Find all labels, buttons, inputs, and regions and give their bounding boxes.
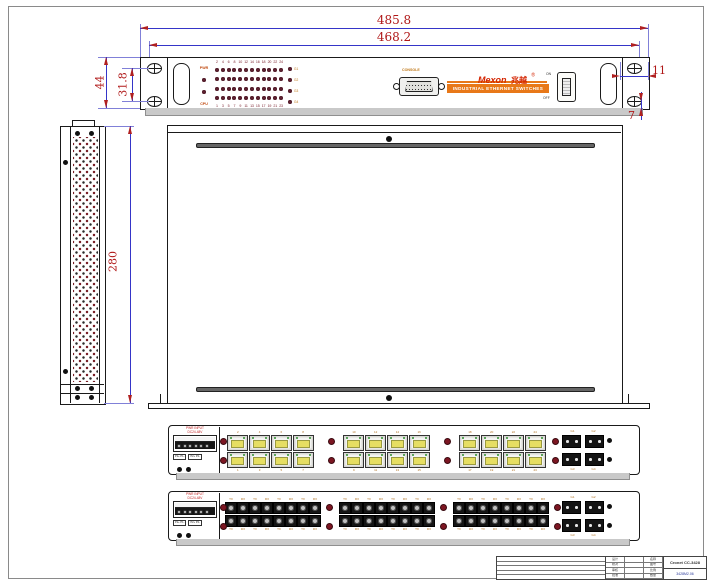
title-block-grid: 设计 名称 校对 图号 审核 比例 批准 数量 [606, 557, 664, 579]
terminal-screw [199, 444, 203, 448]
fiber-port [363, 502, 375, 514]
screw [75, 395, 80, 400]
chassis-screw [440, 523, 447, 530]
panel-screw [607, 523, 612, 528]
fiber-port [411, 515, 423, 527]
fiber-group: TXRXTXRXTXRXTXRXTXRXTXRXTXRXTXRX [339, 497, 435, 531]
fiber-group: TXRXTXRXTXRXTXRXTXRXTXRXTXRXTXRX [453, 497, 549, 531]
fiber-port [501, 502, 513, 514]
port-led [238, 68, 242, 72]
rj45-group: 24681357 [227, 430, 314, 472]
uplink-labels: G3G4 [562, 467, 604, 471]
chassis-screw [444, 438, 451, 445]
gig-label: G1 [570, 429, 574, 433]
alarm-led [202, 90, 206, 94]
uplink-labels: G1G2 [562, 495, 604, 499]
fiber-port [309, 502, 321, 514]
registered-mark: ® [531, 73, 535, 79]
fiber-label: RX [351, 527, 363, 531]
terminal-legend: P2+ P2- [188, 520, 201, 526]
screw [75, 131, 80, 136]
ground-screw [186, 533, 191, 538]
fiber-port [351, 502, 363, 514]
port-led [244, 96, 248, 100]
port-number: 22 [503, 430, 525, 434]
rj45-port [227, 452, 248, 468]
fiber-port [351, 515, 363, 527]
terminal-screw [205, 444, 209, 448]
power-rating: DC24-48V [173, 497, 217, 501]
gig-led [288, 67, 292, 71]
dim-overall-width: 485.8 [140, 13, 648, 27]
fiber-label: RX [309, 527, 321, 531]
rj45-port [481, 435, 502, 451]
dim-bracket-drop: 7 [628, 109, 635, 122]
panel-slot-left [173, 63, 190, 105]
port-number: 9 [343, 468, 365, 472]
switch-off-label: OFF [543, 96, 550, 100]
gig-label: G1 [294, 67, 298, 71]
fiber-label: TX [387, 497, 399, 501]
rj45-port [503, 435, 524, 451]
chassis-screw [220, 457, 227, 464]
terminal-screw [188, 444, 192, 448]
terminal-screw [194, 444, 198, 448]
ground-screw [186, 467, 191, 472]
port-led [279, 77, 283, 81]
terminal-screw [183, 510, 187, 514]
port-led [232, 77, 236, 81]
uplink-port [562, 453, 581, 466]
gig-label: G2 [294, 78, 298, 82]
fiber-label: TX [525, 527, 537, 531]
rj45-port [271, 452, 292, 468]
fiber-label: RX [465, 497, 477, 501]
port-number: 8 [292, 430, 314, 434]
gig-led [288, 89, 292, 93]
port-led [267, 77, 271, 81]
terminal-screw [199, 510, 203, 514]
rear-panel-rj45: PWR INPUT DC24-48V P1+ P1- P2+ P2- 24681… [168, 425, 640, 475]
rj45-port [293, 435, 314, 451]
port-led [215, 68, 219, 72]
terminal-screws [175, 442, 215, 449]
fiber-label: RX [237, 497, 249, 501]
fiber-port [537, 515, 549, 527]
gig-label: G3 [570, 467, 574, 471]
fiber-port [477, 502, 489, 514]
port-led [244, 77, 248, 81]
product-banner: INDUSTRIAL ETHERNET SWITCHES [447, 84, 549, 93]
uplink-port [585, 501, 604, 514]
status-led-column: PWR CPU [197, 66, 211, 106]
panel-bottom-edge [176, 539, 630, 546]
port-number: 3 [249, 468, 271, 472]
gig-leds: G1G2G3G4 [288, 66, 304, 104]
gig-label: G3 [570, 533, 574, 537]
fiber-port [249, 502, 261, 514]
screw [63, 369, 68, 374]
fiber-port [387, 515, 399, 527]
vent-slot [196, 387, 595, 392]
fiber-port [285, 515, 297, 527]
port-led [267, 68, 271, 72]
chassis-screw [220, 438, 227, 445]
terminal-block [173, 435, 217, 452]
port-led [250, 68, 254, 72]
panel-screw [607, 438, 612, 443]
fiber-port [411, 502, 423, 514]
port-led [256, 77, 260, 81]
chassis-screw [220, 504, 227, 511]
vent-holes [73, 137, 98, 382]
fiber-port [513, 515, 525, 527]
dim-mounting-width: 468.2 [149, 30, 639, 44]
port-led [262, 68, 266, 72]
port-led [215, 96, 219, 100]
rj45-port [409, 452, 430, 468]
port-number: 12 [365, 430, 387, 434]
fiber-port [525, 515, 537, 527]
port-number: 10 [343, 430, 365, 434]
fiber-port [309, 515, 321, 527]
chassis-screw [440, 504, 447, 511]
rj45-group: 1820222417192123 [459, 430, 546, 472]
rj45-group: 101214169111315 [343, 430, 430, 472]
rj45-port [249, 435, 270, 451]
gig-label: G4 [591, 467, 595, 471]
chassis-screw [554, 504, 561, 511]
terminal-screw [177, 510, 181, 514]
rj45-port [459, 452, 480, 468]
port-led [238, 96, 242, 100]
console-label: CONSOLE [402, 68, 420, 72]
chassis-screw [326, 504, 333, 511]
screw [89, 395, 94, 400]
cpu-led-label: CPU [200, 102, 208, 106]
port-led [279, 87, 283, 91]
fiber-label: TX [501, 497, 513, 501]
fiber-port [297, 515, 309, 527]
fiber-label: TX [411, 497, 423, 501]
fiber-label: RX [375, 527, 387, 531]
chassis-screw [326, 523, 333, 530]
port-number: 4 [249, 430, 271, 434]
fiber-port [237, 515, 249, 527]
port-led [244, 68, 248, 72]
port-led [273, 68, 277, 72]
fiber-label: TX [411, 527, 423, 531]
fiber-port [453, 515, 465, 527]
fiber-label: TX [249, 497, 261, 501]
port-led [215, 87, 219, 91]
pwr-led [202, 78, 206, 82]
port-led [227, 87, 231, 91]
terminal-screw [177, 444, 181, 448]
ground-screw [177, 533, 182, 538]
fiber-label: TX [477, 497, 489, 501]
port-led [238, 77, 242, 81]
bracket-screw-hole [147, 63, 162, 74]
fiber-port [489, 502, 501, 514]
fiber-label: TX [273, 497, 285, 501]
port-number: 24 [524, 430, 546, 434]
fiber-group: TXRXTXRXTXRXTXRXTXRXTXRXTXRXTXRX [225, 497, 321, 531]
uplink-block [562, 435, 604, 466]
drawing-number: 3428M2.06 [664, 569, 706, 580]
power-zone: PWR INPUT DC24-48V P1+ P1- P2+ P2- [173, 493, 217, 539]
chassis-screw [552, 457, 559, 464]
fiber-port [465, 502, 477, 514]
fiber-label: RX [489, 497, 501, 501]
port-led [273, 77, 277, 81]
rj45-port [525, 452, 546, 468]
fiber-port [477, 515, 489, 527]
gig-label: G2 [591, 495, 595, 499]
fiber-port [465, 515, 477, 527]
port-led [232, 96, 236, 100]
panel-screw [607, 457, 612, 462]
terminal-screws [175, 508, 215, 515]
port-led [262, 96, 266, 100]
chassis-screw [328, 457, 335, 464]
port-led [250, 77, 254, 81]
fiber-port [399, 515, 411, 527]
gig-led [288, 100, 292, 104]
port-led [227, 77, 231, 81]
fiber-port [237, 502, 249, 514]
chassis-screw [554, 523, 561, 530]
fiber-port [261, 515, 273, 527]
rj45-port [293, 452, 314, 468]
fiber-label: RX [237, 527, 249, 531]
power-rating: DC24-48V [173, 431, 217, 435]
fiber-port [249, 515, 261, 527]
bracket-screw-hole [627, 63, 642, 74]
rj45-port [343, 452, 364, 468]
panel-slot-right [600, 63, 617, 105]
screw [386, 395, 392, 401]
fiber-port [513, 502, 525, 514]
rj45-port [459, 435, 480, 451]
port-led [267, 96, 271, 100]
fiber-label: TX [387, 527, 399, 531]
port-led [256, 68, 260, 72]
title-block-rows [497, 557, 606, 579]
fiber-port [387, 502, 399, 514]
terminal-block [173, 501, 217, 518]
port-led [221, 96, 225, 100]
gig-led [288, 78, 292, 82]
port-led [215, 77, 219, 81]
rj45-port [227, 435, 248, 451]
fiber-label: RX [399, 497, 411, 501]
rj45-port [365, 452, 386, 468]
port-number: 1 [227, 468, 249, 472]
fiber-port [501, 515, 513, 527]
screw [89, 386, 94, 391]
terminal-legend: P1+ P1- [173, 520, 186, 526]
rj45-port [481, 452, 502, 468]
port-number: 6 [271, 430, 293, 434]
uplink-port [562, 435, 581, 448]
fiber-port [363, 515, 375, 527]
fiber-label: TX [339, 497, 351, 501]
power-switch-rocker [562, 78, 571, 96]
port-led [279, 68, 283, 72]
fiber-label: TX [453, 527, 465, 531]
front-numbers-bottom: 1357911131517192123 [214, 104, 284, 108]
port-led [221, 68, 225, 72]
fiber-port [489, 515, 501, 527]
fiber-label: RX [423, 497, 435, 501]
front-numbers-top: 24681012141618202224 [214, 60, 284, 64]
fiber-label: RX [537, 527, 549, 531]
fiber-port [375, 515, 387, 527]
rj45-port [525, 435, 546, 451]
uplink-port [562, 501, 581, 514]
uplink-block [562, 501, 604, 532]
port-number: 23 [524, 468, 546, 472]
terminal-screw [183, 444, 187, 448]
fiber-port [285, 502, 297, 514]
fiber-port [537, 502, 549, 514]
fiber-label: RX [261, 527, 273, 531]
rj45-port [365, 435, 386, 451]
fiber-label: TX [501, 527, 513, 531]
port-led [232, 87, 236, 91]
rj45-port [343, 435, 364, 451]
port-led [267, 87, 271, 91]
fiber-port [339, 502, 351, 514]
fiber-label: RX [423, 527, 435, 531]
terminal-screw [205, 510, 209, 514]
fiber-label: TX [477, 527, 489, 531]
port-number: 21 [503, 468, 525, 472]
port-number: 7 [292, 468, 314, 472]
port-number: 13 [387, 468, 409, 472]
fiber-port [423, 502, 435, 514]
fiber-label: TX [225, 497, 237, 501]
fiber-label: TX [453, 497, 465, 501]
fiber-label: RX [309, 497, 321, 501]
port-number: 16 [408, 430, 430, 434]
fiber-port [261, 502, 273, 514]
switch-on-label: ON [546, 72, 551, 76]
port-number: 15 [408, 468, 430, 472]
fiber-label: RX [375, 497, 387, 501]
port-led [244, 87, 248, 91]
fiber-label: TX [363, 527, 375, 531]
fiber-port [339, 515, 351, 527]
port-number: 17 [459, 468, 481, 472]
port-number: 20 [481, 430, 503, 434]
rj45-port [387, 435, 408, 451]
fiber-port [297, 502, 309, 514]
terminal-legend: P2+ P2- [188, 454, 201, 460]
port-led [273, 96, 277, 100]
screw [63, 160, 68, 165]
fiber-label: TX [297, 527, 309, 531]
bracket-screw-hole [147, 96, 162, 107]
port-number: 2 [227, 430, 249, 434]
fiber-label: TX [525, 497, 537, 501]
top-body [167, 125, 623, 405]
gig-label: G4 [591, 533, 595, 537]
port-led [250, 87, 254, 91]
panel-bottom-edge [176, 473, 630, 480]
vent-slot [196, 143, 595, 148]
terminal-screw [194, 510, 198, 514]
rj45-port [387, 452, 408, 468]
uplink-labels: G1G2 [562, 429, 604, 433]
uplink-port [585, 435, 604, 448]
rj45-port [409, 435, 430, 451]
fiber-port [375, 502, 387, 514]
port-led [273, 87, 277, 91]
fiber-label: RX [489, 527, 501, 531]
dim-bracket-width: 11 [652, 64, 666, 77]
fiber-port [525, 502, 537, 514]
fiber-port [399, 502, 411, 514]
port-number: 19 [481, 468, 503, 472]
gig-label: G2 [591, 429, 595, 433]
screw [386, 136, 392, 142]
model-number: Cronet CC-3428 [664, 557, 706, 569]
fiber-label: RX [513, 497, 525, 501]
fiber-label: TX [273, 527, 285, 531]
port-number: 14 [387, 430, 409, 434]
port-led [262, 77, 266, 81]
port-led [279, 96, 283, 100]
ground-screw [177, 467, 182, 472]
fiber-label: RX [537, 497, 549, 501]
fiber-port [273, 502, 285, 514]
port-led [238, 87, 242, 91]
gig-label: G1 [570, 495, 574, 499]
fiber-label: RX [513, 527, 525, 531]
port-led [250, 96, 254, 100]
port-led [221, 77, 225, 81]
port-led [227, 96, 231, 100]
screw [89, 131, 94, 136]
fiber-port [453, 502, 465, 514]
fiber-label: RX [285, 497, 297, 501]
dim-panel-height: 44 [94, 73, 105, 93]
port-led [262, 87, 266, 91]
port-number: 11 [365, 468, 387, 472]
port-number: 24 [278, 60, 284, 64]
db9-pins [405, 81, 433, 92]
rear-panel-fiber: PWR INPUT DC24-48V P1+ P1- P2+ P2- TXRXT… [168, 491, 640, 541]
chassis-screw [552, 438, 559, 445]
console-screw [438, 83, 445, 90]
fiber-port [423, 515, 435, 527]
chassis-screw [444, 457, 451, 464]
port-led [227, 68, 231, 72]
front-flange [148, 403, 650, 409]
fiber-label: TX [339, 527, 351, 531]
terminal-screw [188, 510, 192, 514]
fiber-label: RX [285, 527, 297, 531]
fiber-port [273, 515, 285, 527]
fiber-label: TX [297, 497, 309, 501]
terminal-legend: P1+ P1- [173, 454, 186, 460]
rj45-port [271, 435, 292, 451]
screw [75, 386, 80, 391]
chassis-screw [328, 438, 335, 445]
fiber-label: TX [249, 527, 261, 531]
